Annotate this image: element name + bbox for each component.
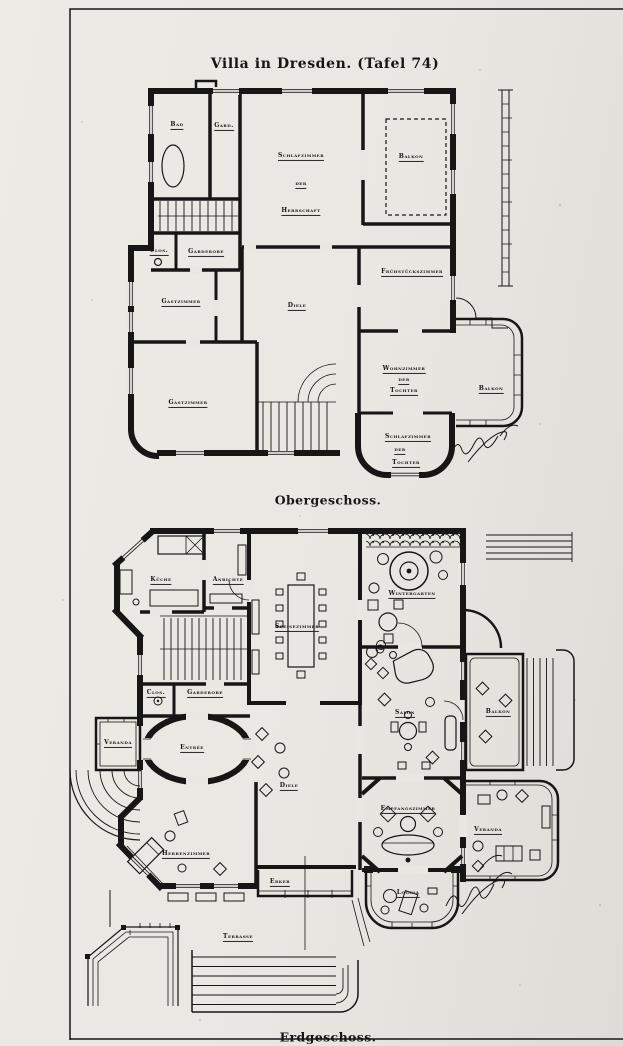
veranda-west [70, 718, 140, 840]
eg-label-clos: Clos. [147, 690, 166, 698]
og-label-garderobe: Garderobe [188, 249, 224, 257]
caption-erdgeschoss: Erdgeschoss. [280, 1030, 377, 1045]
og-label-schlafzimmer-herrschaft-3: Herrschaft [281, 208, 320, 216]
eg-label-veranda-west: Veranda [104, 740, 132, 748]
caption-obergeschoss: Obergeschoss. [275, 493, 382, 508]
og-label-schlafzimmer-herrschaft-1: Schlafzimmer [278, 153, 324, 161]
og-stair-upper [158, 201, 238, 231]
eg-label-terrasse: Terrasse [223, 934, 253, 942]
eg-label-veranda-east: Veranda [474, 827, 502, 835]
og-balcony-floor [386, 119, 446, 215]
eg-wc [154, 697, 162, 705]
og-label-diele: Diele [288, 303, 306, 311]
scale-bar [498, 90, 513, 286]
eg-label-wintergarten: Wintergarten [388, 591, 435, 599]
og-label-clos: Clos. [150, 248, 169, 256]
eg-label-diele: Diele [280, 783, 298, 791]
architect-signature-lower [446, 855, 512, 914]
eg-label-balkon: Balkon [486, 709, 511, 717]
balkon-and-stair-east [466, 650, 574, 770]
eg-door-arcs [229, 580, 463, 720]
og-label-wohnzimmer-tochter-1: Wohnzimmer [383, 366, 426, 374]
plate-title: Villa in Dresden. (Tafel 74) [211, 56, 440, 72]
anrichte-fixtures [210, 545, 246, 603]
og-stair-main [257, 364, 336, 451]
og-label-schlafzimmer-herrschaft-2: der [295, 181, 306, 189]
eg-label-garderobe: Garderobe [187, 690, 223, 698]
og-label-schlafzimmer-tochter-3: Tochter [392, 460, 420, 468]
og-label-wohnzimmer-tochter-3: Tochter [390, 388, 418, 396]
eg-label-erker: Erker [270, 879, 290, 887]
eg-label-entree: Entrée [180, 745, 204, 753]
obergeschoss-plan [127, 81, 522, 479]
og-balkon-bay [456, 298, 522, 426]
og-label-balkon-side: Balkon [479, 386, 504, 394]
og-wc [155, 259, 162, 266]
scanned-plate: Villa in Dresden. (Tafel 74) Obergeschos… [0, 0, 623, 1046]
eg-label-salon: Salon [395, 710, 415, 718]
eg-label-loggia: Loggia [397, 890, 420, 898]
eg-label-herrenzimmer: Herrenzimmer [162, 851, 210, 859]
stair-northeast [463, 532, 572, 648]
og-label-schlafzimmer-tochter-2: der [394, 447, 405, 455]
og-label-schlafzimmer-tochter-1: Schlafzimmer [385, 434, 431, 442]
og-label-bad: Bad [170, 122, 183, 130]
og-door-gaps [186, 150, 423, 417]
og-label-balkon-top: Balkon [399, 154, 424, 162]
eg-stair-main [160, 616, 248, 680]
eg-label-speisezimmer: Speisezimmer [275, 624, 319, 632]
og-label-gastzimmer-1: Gastzimmer [161, 299, 200, 307]
salon-furniture [365, 641, 456, 770]
og-label-wohnzimmer-tochter-2: der [398, 377, 409, 385]
eg-label-kueche: Küche [150, 577, 171, 585]
terrasse-works [85, 890, 370, 1012]
architect-signature-upper [452, 425, 518, 462]
erdgeschoss-plan [70, 527, 574, 1012]
bathtub [162, 145, 184, 187]
og-label-gastzimmer-2: Gastzimmer [168, 400, 207, 408]
eg-label-empfangszimmer: Empfangszimmer [381, 806, 436, 814]
eg-label-anrichte: Anrichte [213, 577, 244, 585]
og-label-gard: Gard. [214, 123, 234, 131]
og-label-fruehstueckszimmer: Frühstückszimmer [381, 269, 443, 277]
empfangszimmer-detail [362, 778, 462, 872]
